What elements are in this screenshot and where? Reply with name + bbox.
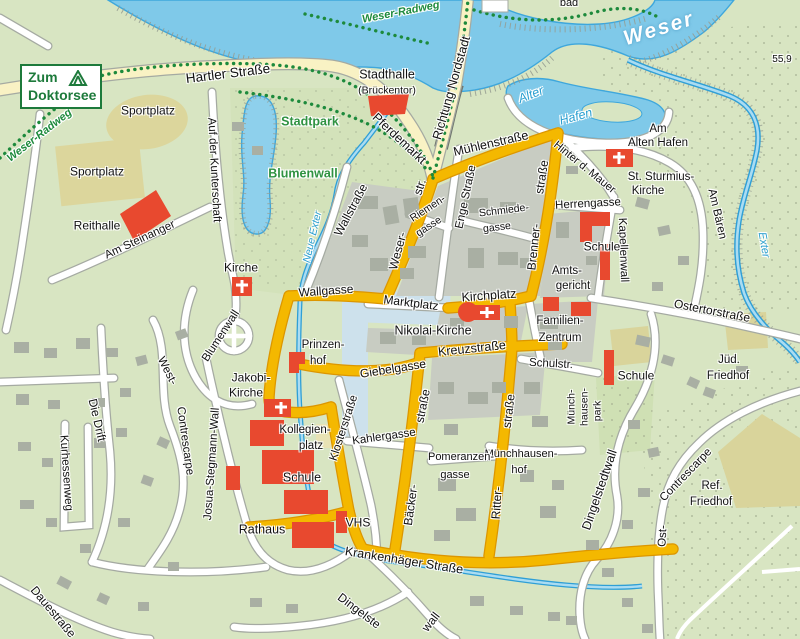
stadtpark-pond — [242, 96, 277, 234]
schule-e-building — [604, 350, 614, 385]
stadthalle-building — [368, 94, 409, 116]
city-map: Weser-RadwegWeser-RadwegHartler StraßeSp… — [0, 0, 800, 639]
kirche-west-icon — [232, 277, 252, 296]
st-sturmius-kirche-icon — [606, 149, 633, 167]
schule-sw-building-3 — [284, 490, 328, 514]
vhs-building — [336, 511, 347, 533]
rathaus-building — [292, 522, 334, 548]
jakobi-kirche-icon — [264, 399, 291, 417]
familien-zentrum-building-1 — [543, 297, 559, 311]
nikolai-kirche-icon — [458, 302, 500, 322]
tent-icon — [68, 70, 88, 86]
campsite-sign: Zum Doktorsee — [20, 64, 102, 109]
schule-ne-wing — [600, 244, 610, 280]
map-canvas — [0, 0, 800, 639]
schule-sw-building-4 — [226, 466, 240, 490]
familien-zentrum-building-2 — [571, 302, 591, 316]
schule-sw-building-2 — [262, 450, 314, 484]
schule-sw-building-1 — [250, 420, 284, 446]
sign-line1: Zum — [28, 69, 58, 87]
sign-line2: Doktorsee — [28, 87, 94, 105]
